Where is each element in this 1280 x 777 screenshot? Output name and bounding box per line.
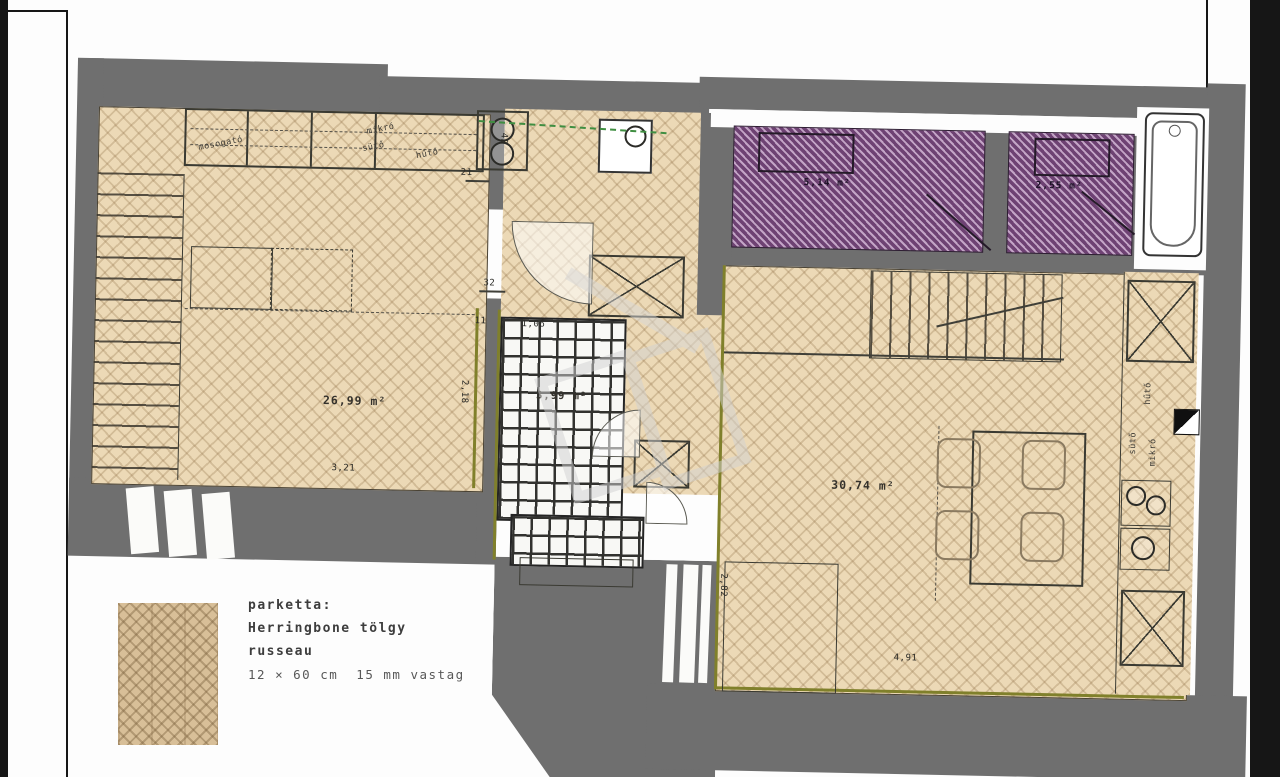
area-label-bath1: 5,14 m²	[803, 177, 850, 189]
label-suto-right: sütő	[1128, 432, 1138, 455]
washbasin	[598, 119, 653, 174]
cooktop-right	[1120, 480, 1171, 527]
legend-title: parketta:	[248, 598, 332, 613]
dim-living-width: 3,21	[331, 463, 355, 473]
counter-divider	[310, 113, 313, 167]
area-label-main: 30,74 m²	[831, 478, 895, 493]
burner-icon	[490, 141, 514, 165]
area-label-living: 26,99 m²	[323, 393, 387, 408]
cabinet-right-bottom	[1120, 590, 1186, 667]
staircase-left	[91, 172, 184, 480]
dim-living-height: 2,18	[459, 380, 469, 404]
label-mikro-right: mikró	[1148, 438, 1159, 466]
chair	[936, 438, 981, 489]
bath1-shower-tray	[758, 132, 855, 174]
dim-main-width: 4,91	[894, 653, 918, 663]
wall-top-left-a	[87, 58, 388, 112]
logo-watermark	[548, 298, 733, 513]
burner-icon	[1126, 486, 1146, 506]
dim-niche: 32	[483, 278, 495, 288]
label-huto-right: hűtő	[1143, 382, 1153, 405]
legend-size: 12 × 60 cm 15 mm vastag	[248, 667, 465, 682]
legend-finish: russeau	[248, 644, 313, 659]
section-marker-icon	[1173, 409, 1200, 436]
sink-bowl-icon	[1131, 536, 1155, 560]
counter-divider	[246, 111, 249, 165]
window-slat	[164, 489, 197, 557]
bathtub	[1142, 112, 1205, 257]
living-furniture-a	[190, 246, 273, 310]
bath2-fixture	[1034, 138, 1111, 178]
legend-material: Herringbone tölgy	[248, 621, 407, 636]
floorplan-sheet: 26,99 m² 3,99 m² 30,74 m² 5,14 m² 2,55 m…	[0, 0, 1280, 777]
living-furniture-b	[270, 248, 353, 312]
burner-icon	[1146, 495, 1166, 515]
dim-wet-width: 1,06	[521, 319, 545, 329]
area-label-bath2: 2,55 m²	[1035, 180, 1082, 192]
chair	[1020, 512, 1065, 563]
staircase-main	[869, 270, 1063, 362]
window-slat	[202, 492, 235, 560]
basin-bowl-icon	[624, 125, 646, 147]
chair	[1021, 440, 1066, 491]
dim-closet: 42	[498, 133, 508, 145]
sink-right	[1120, 528, 1171, 571]
bathtub-inner	[1149, 120, 1198, 247]
dim-counter-end: 21	[461, 168, 473, 178]
step-below-wetroom	[519, 557, 634, 587]
cabinet-right-top	[1126, 280, 1196, 363]
counter-dashed-line	[191, 128, 477, 135]
sofa	[722, 561, 839, 693]
parquet-sample-swatch	[118, 603, 218, 745]
dim-main-left: 2,82	[718, 573, 728, 597]
window-slat	[126, 486, 159, 554]
dim-niche-gap: 11	[475, 316, 487, 326]
chair	[935, 510, 980, 561]
